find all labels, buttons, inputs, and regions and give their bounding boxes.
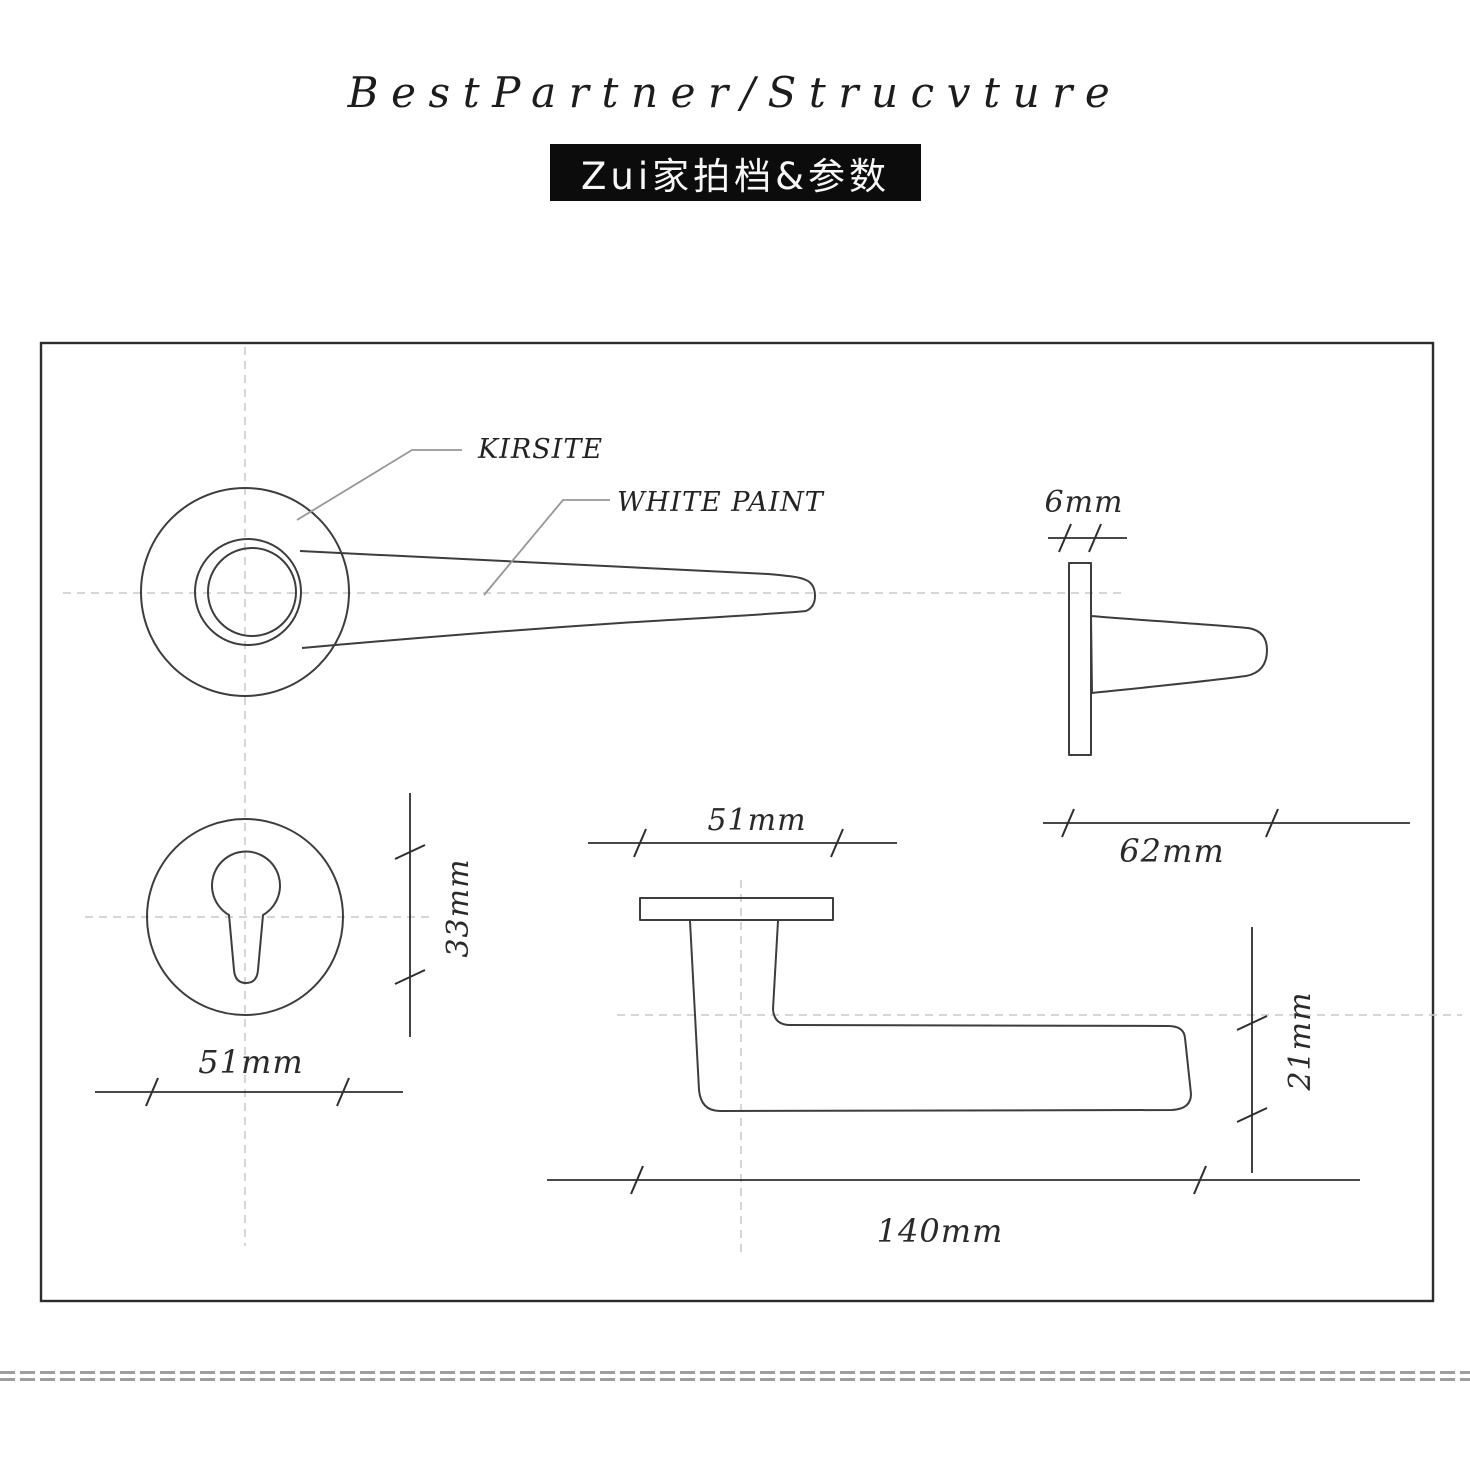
rose-plate-elevation [640, 898, 833, 920]
spec-sheet: BestPartner/Strucvture Zui家拍档&参数 KIRSITE… [0, 0, 1470, 1470]
rose-collar-circle [195, 539, 301, 645]
white-paint-leader-line [484, 500, 610, 595]
dimension-label: 6mm [1045, 485, 1124, 520]
kirsite-leader-line [297, 450, 462, 520]
dimension-keyhole-height: 33mm [395, 793, 476, 1037]
dimension-rose-thickness: 6mm [1045, 485, 1127, 552]
front-view-handle [141, 488, 815, 696]
side-view-handle [1069, 563, 1267, 755]
dimension-label: 21mm [1283, 991, 1318, 1091]
dimension-rose-width: 51mm [588, 803, 897, 857]
dimension-label: 33mm [441, 858, 476, 957]
finish-callout: WHITE PAINT [617, 487, 825, 518]
lever-side-outline [1091, 616, 1267, 693]
lever-elevation-outline [690, 921, 1191, 1111]
material-callout: KIRSITE [477, 434, 603, 465]
dimension-handle-projection: 62mm [1043, 809, 1410, 870]
dimension-escutcheon-diameter: 51mm [95, 1043, 403, 1106]
bottom-dashed-separator [0, 1371, 1470, 1383]
dimension-lever-length: 140mm [547, 1166, 1360, 1250]
side-elevation-handle [640, 898, 1191, 1111]
dimension-lever-depth: 21mm [1237, 927, 1318, 1173]
handle-neck-circle [208, 548, 296, 636]
rose-plate-side [1069, 563, 1091, 755]
dimension-label: 140mm [877, 1212, 1004, 1250]
dimension-label: 51mm [707, 803, 806, 838]
lever-front-outline [300, 551, 815, 648]
technical-drawing: KIRSITE WHITE PAINT 6mm 62mm [0, 0, 1470, 1470]
dimension-label: 62mm [1119, 832, 1224, 870]
dimension-label: 51mm [198, 1043, 303, 1081]
